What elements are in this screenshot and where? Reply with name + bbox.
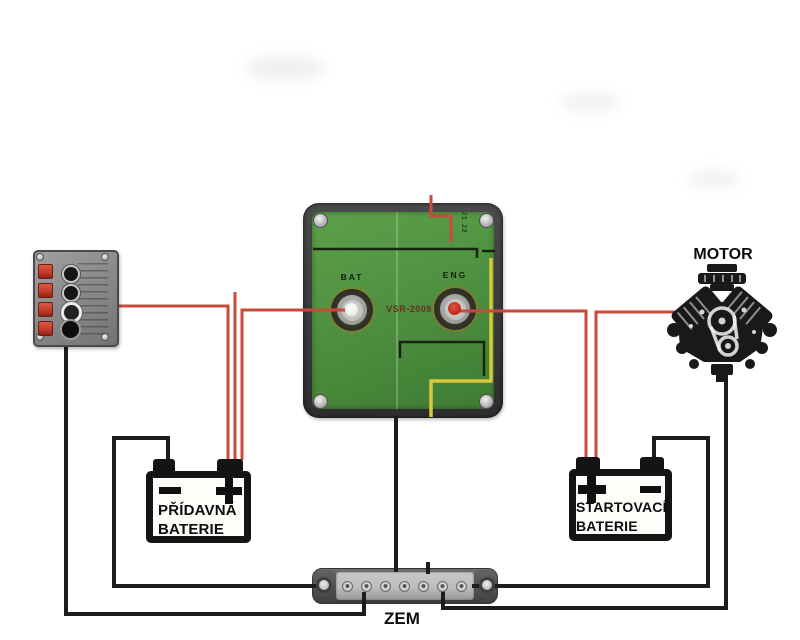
ground-label: ZEM <box>374 609 430 629</box>
screw-icon <box>101 333 109 341</box>
rocker-switch <box>38 321 53 336</box>
vsr-model-label: VSR-2008 <box>374 304 444 314</box>
busbar-screw <box>399 581 410 592</box>
aux-battery-label-line1: PŘÍDAVNÁ <box>158 502 237 519</box>
rocker-switch <box>38 302 53 317</box>
screw-icon <box>101 253 109 261</box>
busbar-screw <box>361 581 372 592</box>
screw-icon <box>313 213 328 228</box>
panel-vents <box>78 263 108 335</box>
fuse-socket <box>62 284 80 302</box>
background-smudge <box>688 170 740 188</box>
rocker-switch <box>38 264 53 279</box>
minus-symbol <box>640 486 661 493</box>
screw-icon <box>479 213 494 228</box>
wiring-diagram: BAT ENG VSR-2008 J1 J2 <box>0 0 800 640</box>
rocker-switch <box>38 283 53 298</box>
wire-red-panel-to-aux-battery <box>113 306 228 460</box>
eng-terminal-label: ENG <box>433 270 477 280</box>
busbar-terminal-screw <box>479 577 495 593</box>
aux-battery-label-line2: BATERIE <box>158 521 224 538</box>
eng-terminal-cap <box>448 302 461 315</box>
background-smudge <box>560 92 620 112</box>
fuse-socket <box>60 319 81 340</box>
background-smudge <box>245 55 325 81</box>
busbar-screw <box>418 581 429 592</box>
fuse-socket <box>62 265 80 283</box>
plus-symbol <box>225 478 233 504</box>
busbar-terminal-screw <box>316 577 332 593</box>
starter-battery-label-line1: STARTOVACÍ <box>576 499 667 515</box>
busbar-screw <box>380 581 391 592</box>
minus-symbol <box>159 487 181 494</box>
motor-label: MOTOR <box>686 246 760 264</box>
jumper-label: J1 J2 <box>460 211 467 234</box>
bat-terminal-cap <box>345 303 358 316</box>
busbar-screw <box>437 581 448 592</box>
busbar-screw <box>342 581 353 592</box>
screw-icon <box>36 253 44 261</box>
bat-terminal-label: BAT <box>330 272 374 282</box>
busbar-screw <box>456 581 467 592</box>
screw-icon <box>479 394 494 409</box>
screw-icon <box>313 394 328 409</box>
engine-icon <box>666 264 778 382</box>
starter-battery-label-line2: BATERIE <box>576 518 638 534</box>
